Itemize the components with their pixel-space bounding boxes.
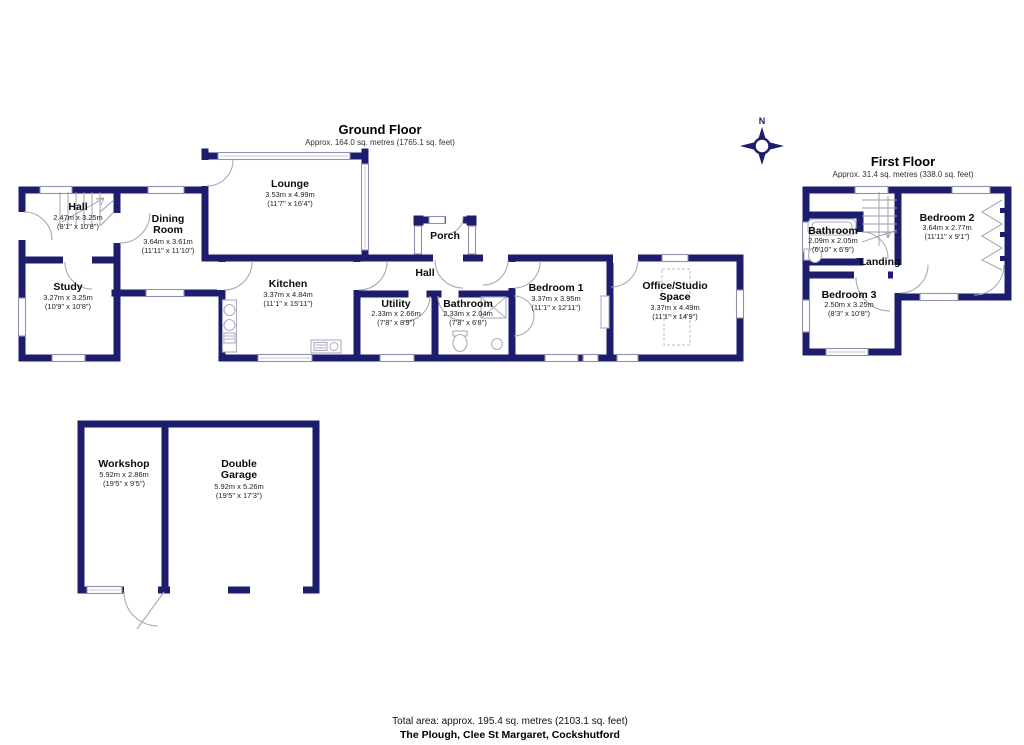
outbuilding-door-openings — [124, 585, 303, 595]
room-label-workshop: Workshop — [98, 458, 149, 470]
room-dim-garage-metric: 5.92m x 5.26m — [214, 482, 264, 491]
room-dim-office-metric: 3.37m x 4.49m — [650, 303, 700, 312]
room-dim-bedroom2-imperial: (11'11" x 9'1") — [924, 232, 970, 241]
hob-ring-icon — [224, 305, 235, 316]
room-dim-ff-bathroom-imperial: (6'10" x 6'9") — [812, 245, 854, 254]
room-dim-bedroom3-imperial: (8'3" x 10'8") — [828, 309, 870, 318]
room-dim-dining-imperial: (11'11" x 11'10") — [142, 246, 195, 255]
room-dim-ff-bathroom-metric: 2.09m x 2.05m — [808, 236, 858, 245]
room-dim-bedroom1-imperial: (11'1" x 12'11") — [531, 303, 581, 312]
ground-floor-door-openings — [17, 160, 638, 290]
compass-north-label: N — [759, 116, 766, 126]
room-label-study: Study — [53, 281, 82, 293]
room-dim-hall-metric: 2.47m x 3.25m — [53, 213, 103, 222]
room-dim-study-metric: 3.27m x 3.25m — [43, 293, 93, 302]
room-label-bedroom1: Bedroom 1 — [529, 282, 584, 294]
floorplan-svg: N Ground Floor Approx. 164.0 sq. metres … — [0, 0, 1024, 745]
bedroom2-wardrobes — [982, 200, 1005, 270]
outbuilding-walls — [81, 424, 316, 629]
room-label-lounge: Lounge — [271, 178, 309, 190]
room-dim-utility-imperial: (7'8" x 8'9") — [377, 318, 415, 327]
room-label-garage-2: Garage — [221, 469, 257, 481]
room-dim-bedroom3-metric: 2.50m x 3.25m — [824, 300, 874, 309]
room-dim-kitchen-metric: 3.37m x 4.84m — [263, 290, 313, 299]
footer-total-area: Total area: approx. 195.4 sq. metres (21… — [392, 716, 628, 727]
room-label-landing: Landing — [860, 256, 901, 268]
floorplan-canvas: N Ground Floor Approx. 164.0 sq. metres … — [0, 0, 1024, 745]
room-dim-dining-metric: 3.64m x 3.61m — [143, 237, 193, 246]
first-floor-walls — [806, 190, 1008, 352]
room-dim-gf-bathroom-imperial: (7'8" x 6'8") — [449, 318, 487, 327]
floor-titles: Ground Floor Approx. 164.0 sq. metres (1… — [305, 122, 974, 179]
room-label-kitchen: Kitchen — [269, 278, 308, 290]
ground-floor-walls — [17, 152, 740, 358]
room-dim-utility-metric: 2.33m x 2.66m — [371, 309, 421, 318]
room-dim-garage-imperial: (19'5" x 17'3") — [216, 491, 263, 500]
room-dim-workshop-imperial: (19'5" x 9'5") — [103, 479, 145, 488]
room-dim-office-imperial: (11'1" x 14'9") — [652, 312, 698, 321]
room-dim-bedroom2-metric: 3.64m x 2.77m — [922, 223, 972, 232]
first-floor-stairs — [862, 192, 897, 246]
room-dim-workshop-metric: 5.92m x 2.86m — [99, 470, 149, 479]
room-dim-hall-imperial: (8'1" x 10'8") — [57, 222, 99, 231]
ground-floor-subtitle: Approx. 164.0 sq. metres (1765.1 sq. fee… — [305, 138, 455, 147]
room-dim-lounge-metric: 3.53m x 4.99m — [265, 190, 315, 199]
outbuilding-room-labels: Workshop 5.92m x 2.86m (19'5" x 9'5") Do… — [98, 458, 263, 500]
room-label-porch: Porch — [430, 230, 460, 242]
room-dim-kitchen-imperial: (11'1" x 15'11") — [263, 299, 313, 308]
hob-ring-icon — [224, 320, 235, 331]
room-dim-gf-bathroom-metric: 2.33m x 2.04m — [443, 309, 493, 318]
ground-floor-title: Ground Floor — [338, 122, 421, 137]
room-label-inner-hall: Hall — [415, 267, 434, 279]
room-dim-bedroom1-metric: 3.37m x 3.95m — [531, 294, 581, 303]
footer-address: The Plough, Clee St Margaret, Cockshutfo… — [400, 729, 620, 741]
room-label-office-2: Space — [660, 291, 691, 303]
room-label-dining-2: Room — [153, 224, 183, 236]
first-floor-subtitle: Approx. 31.4 sq. metres (338.0 sq. feet) — [833, 170, 974, 179]
room-dim-study-imperial: (10'9" x 10'8") — [45, 302, 92, 311]
compass-icon: N — [740, 116, 784, 165]
room-label-hall: Hall — [68, 201, 87, 213]
wardrobe-icon — [601, 296, 609, 328]
first-floor-title: First Floor — [871, 154, 935, 169]
footer: Total area: approx. 195.4 sq. metres (21… — [392, 716, 628, 741]
basin-icon — [492, 339, 503, 350]
wardrobe-doors-icon — [982, 200, 1002, 270]
room-dim-lounge-imperial: (11'7" x 16'4") — [267, 199, 313, 208]
